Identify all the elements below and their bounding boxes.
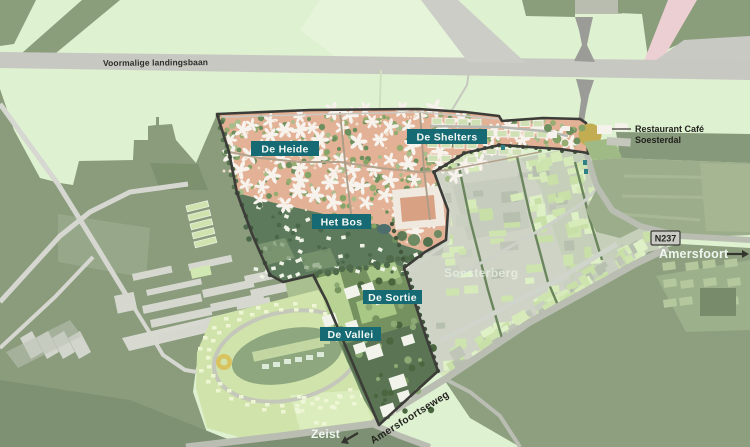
svg-text:De Heide: De Heide: [261, 143, 308, 155]
svg-text:Het Bos: Het Bos: [321, 216, 363, 228]
svg-text:Soesterberg: Soesterberg: [444, 266, 518, 280]
svg-text:Restaurant Café: Restaurant Café: [635, 124, 704, 134]
svg-text:Voormalige landingsbaan: Voormalige landingsbaan: [103, 57, 208, 68]
svg-text:N237: N237: [655, 234, 677, 244]
svg-text:De Shelters: De Shelters: [416, 131, 477, 143]
svg-text:De Vallei: De Vallei: [328, 329, 374, 341]
svg-text:Soesterdal: Soesterdal: [635, 135, 681, 145]
svg-text:De Sortie: De Sortie: [368, 292, 417, 304]
svg-text:Zeist: Zeist: [311, 427, 340, 441]
svg-text:Amersfoort: Amersfoort: [659, 247, 729, 261]
